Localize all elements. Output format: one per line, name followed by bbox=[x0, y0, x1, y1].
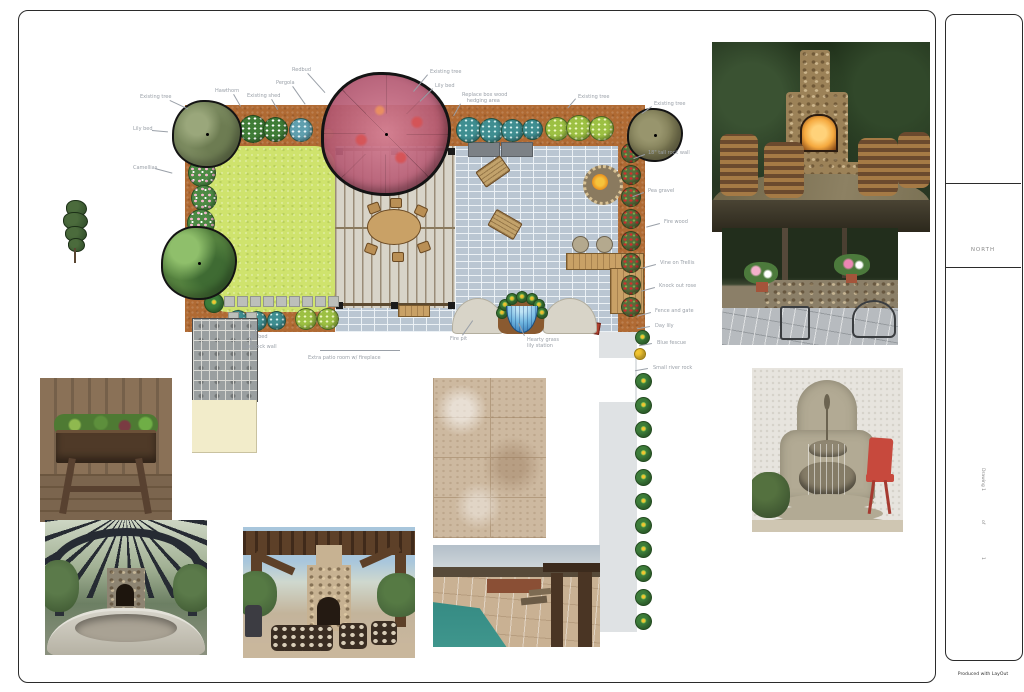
paver-pad bbox=[328, 296, 339, 307]
shrub-symbol bbox=[289, 118, 313, 142]
photo-pool-travertine-deck bbox=[433, 545, 600, 647]
plan-annotation: Fence and gate bbox=[655, 309, 694, 315]
shrub-symbol bbox=[635, 589, 652, 606]
shrub-symbol bbox=[635, 330, 650, 345]
plan-annotation: Existing tree bbox=[578, 95, 609, 101]
chair-symbol bbox=[390, 198, 402, 208]
shrub-symbol bbox=[317, 308, 339, 330]
topiary-trunk bbox=[74, 248, 76, 263]
shrub-symbol bbox=[635, 421, 652, 438]
shrub-symbol bbox=[635, 613, 652, 630]
plan-annotation: Small river rock bbox=[653, 366, 692, 372]
plan-annotation: Existing shed bbox=[247, 94, 280, 100]
cobble-paver-swatch bbox=[192, 318, 258, 402]
shrub-symbol bbox=[263, 117, 288, 142]
photo-wall-fountain bbox=[752, 368, 903, 532]
plan-annotation: Knock out rose bbox=[659, 284, 696, 290]
shrub-symbol bbox=[501, 119, 524, 142]
paver-pad bbox=[237, 296, 248, 307]
photo-raised-planter-box bbox=[40, 378, 172, 522]
shrub-symbol bbox=[634, 348, 646, 360]
photo-outdoor-fireplace-night bbox=[712, 42, 930, 232]
shrub-symbol bbox=[295, 308, 317, 330]
plan-annotation: Extra patio room w/ fireplace bbox=[308, 356, 381, 362]
shrub-symbol bbox=[621, 209, 641, 229]
shrub-symbol bbox=[635, 373, 652, 390]
shrub-symbol bbox=[635, 397, 652, 414]
chair-symbol bbox=[392, 252, 404, 262]
title-block-divider bbox=[945, 267, 1021, 268]
shrub-symbol bbox=[522, 119, 543, 140]
shrub-symbol bbox=[635, 469, 652, 486]
shrub-symbol bbox=[267, 311, 286, 330]
plan-annotation: Low rock wall bbox=[243, 345, 277, 351]
title-block-side-label: 1 bbox=[980, 557, 985, 560]
title-block-side-label: Drawing 1 bbox=[980, 468, 985, 491]
pergola-post bbox=[448, 148, 455, 155]
travertine-sample-photo bbox=[433, 378, 546, 538]
house-step bbox=[468, 142, 500, 157]
plan-annotation: Replace box wood hedging area bbox=[462, 93, 507, 104]
shrub-symbol bbox=[191, 185, 217, 211]
shrub-symbol bbox=[621, 297, 641, 317]
shrub-symbol bbox=[635, 565, 652, 582]
pergola-post bbox=[448, 302, 455, 309]
paver-patio-band bbox=[335, 308, 455, 332]
plan-annotation: Day lily bbox=[655, 324, 674, 330]
shrub-symbol bbox=[621, 165, 641, 185]
shrub-symbol bbox=[621, 275, 641, 295]
shrub-symbol bbox=[479, 118, 504, 143]
dining-table bbox=[367, 209, 421, 245]
photo-pergola-fireplace bbox=[243, 527, 415, 658]
plan-annotation: Lily bed bbox=[435, 84, 455, 90]
plan-annotation: Blue fescue bbox=[657, 341, 686, 347]
title-block-divider bbox=[945, 183, 1021, 184]
shrub-symbol bbox=[635, 517, 652, 534]
stool bbox=[572, 236, 589, 253]
shrub-symbol bbox=[635, 445, 652, 462]
annotation-leader-line bbox=[255, 325, 256, 333]
north-label: NORTH bbox=[951, 247, 1015, 253]
shrub-symbol bbox=[635, 493, 652, 510]
tree bbox=[161, 226, 237, 300]
shrub-symbol bbox=[589, 116, 614, 141]
plan-annotation: Existing tree bbox=[654, 102, 685, 108]
cream-color-swatch bbox=[192, 400, 257, 453]
plan-annotation: Lily bed bbox=[133, 127, 153, 133]
paver-pad bbox=[302, 296, 313, 307]
paver-pad bbox=[250, 296, 261, 307]
stool bbox=[596, 236, 613, 253]
annotation-leader-line bbox=[320, 350, 400, 351]
title-block-side-label: of bbox=[980, 520, 985, 524]
shrub-symbol bbox=[621, 187, 641, 207]
plan-annotation: Existing tree bbox=[430, 70, 461, 76]
plan-annotation: Fire pit bbox=[450, 337, 467, 343]
title-block bbox=[945, 14, 1023, 661]
fire-pit bbox=[583, 165, 623, 205]
plan-annotation: Pea gravel bbox=[648, 189, 674, 195]
photo-stone-wall-patio bbox=[722, 228, 898, 345]
plan-annotation: Vine on Trellis bbox=[660, 261, 694, 267]
photo-round-pergola-courtyard bbox=[45, 520, 207, 655]
paver-pad bbox=[315, 296, 326, 307]
paver-pad bbox=[263, 296, 274, 307]
landscape-plan-sheet: NORTH Drawing 1 of 1 Produced with LayOu… bbox=[0, 0, 1024, 692]
paver-pad bbox=[276, 296, 287, 307]
bench bbox=[398, 305, 430, 317]
walkway-gap bbox=[599, 358, 635, 402]
footer-watermark: Produced with LayOut bbox=[938, 672, 1024, 677]
paver-pad bbox=[289, 296, 300, 307]
plan-annotation: Hawthorn bbox=[215, 89, 239, 95]
plan-annotation: Fire wood bbox=[664, 220, 688, 226]
plan-annotation: 18" tall rock wall bbox=[648, 151, 690, 157]
house-step bbox=[501, 142, 533, 157]
pergola-post bbox=[391, 302, 398, 309]
plan-annotation: Existing tree bbox=[140, 95, 171, 101]
existing-tree bbox=[172, 100, 242, 168]
existing-tree-red-canopy bbox=[321, 72, 451, 196]
paver-pad bbox=[224, 296, 235, 307]
shrub-symbol bbox=[621, 231, 641, 251]
shrub-symbol bbox=[621, 253, 641, 273]
plan-annotation: Hearty grass lily station bbox=[527, 338, 559, 349]
shrub-symbol bbox=[635, 541, 652, 558]
